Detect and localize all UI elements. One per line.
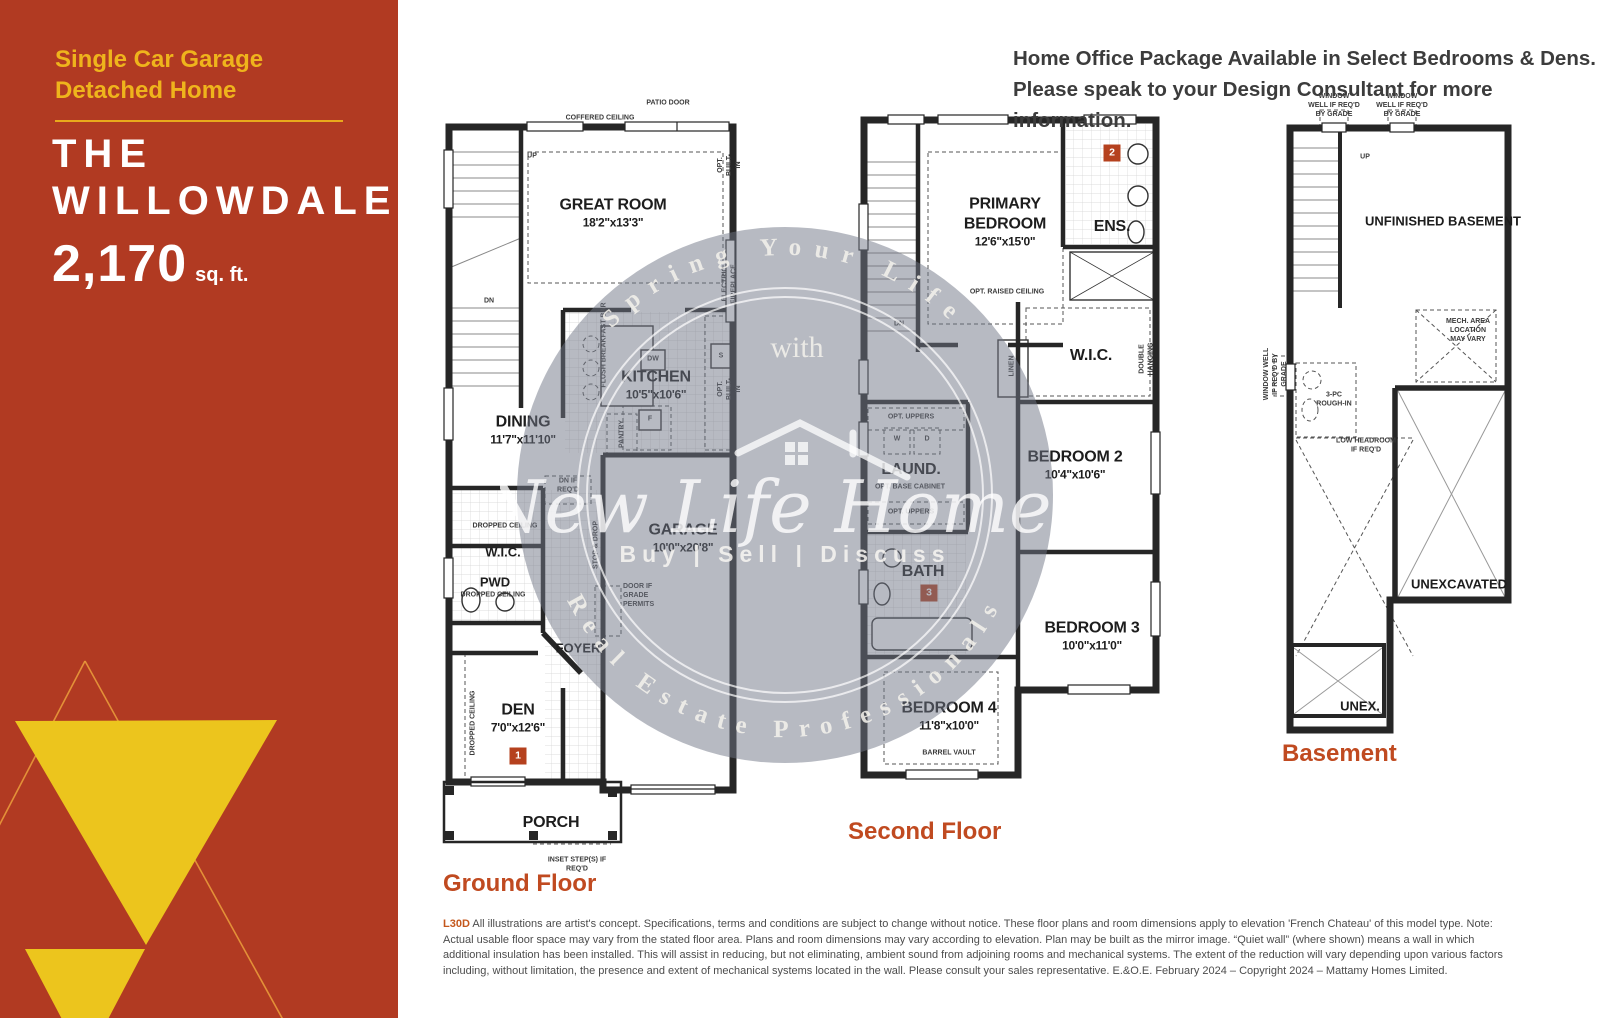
ann-window-well-left: WINDOW WELL IF REQ'D BY GRADE [1263,346,1289,402]
room-label-ens: ENS. [1094,218,1131,236]
ann-opt-raised-ceiling: OPT. RAISED CEILING [970,289,1044,298]
bath-badge: 3 [921,585,938,602]
ann-stop-drop: STOP & DROP [593,521,602,569]
plan-subtitle: Single Car Garage Detached Home [55,44,263,106]
room-label-garage: GARAGE 10'0"x20'8" [648,521,717,556]
room-label-den: DEN 7'0"x12'6" [491,701,545,736]
plan-code: L30D [443,918,470,930]
brand-sidebar: Single Car Garage Detached Home THE WILL… [0,0,398,1018]
home-office-note-line1: Home Office Package Available in Select … [1013,44,1600,75]
room-label-kitchen: KITCHEN 10'5"x10'6" [621,368,691,403]
floorplan-brochure-page: Single Car Garage Detached Home THE WILL… [0,0,1600,1018]
plan-title: THE WILLOWDALE [52,131,398,225]
ann-dn-second: DN [894,321,904,330]
plan-subtitle-line1: Single Car Garage [55,44,263,75]
house-window-icon [785,442,808,465]
room-label-wic: W.I.C. [485,545,520,560]
basement-plan: WINDOW WELL IF REQ'D BY GRADE WINDOW WEL… [1270,98,1520,748]
ens-badge: 2 [1104,145,1121,162]
ann-up: UP [527,153,537,162]
legal-disclaimer: L30D All illustrations are artist's conc… [443,917,1518,979]
room-label-great-room: GREAT ROOM 18'2"x13'3" [559,196,666,231]
second-floor-title: Second Floor [848,818,1001,846]
ann-up-basement: UP [1360,154,1370,163]
room-label-porch: PORCH [523,814,580,832]
room-label-bedroom2: BEDROOM 2 10'4"x10'6" [1027,448,1122,483]
home-office-note: Home Office Package Available in Select … [1013,44,1600,136]
triangle-logo-icon [0,598,398,1018]
room-label-foyer: FOYER [556,641,601,656]
plan-area: 2,170sq. ft. [52,234,248,294]
ann-opt-built-in: OPT. BUILT-IN [717,154,743,176]
plan-subtitle-line2: Detached Home [55,75,263,106]
ann-opt-uppers: OPT. UPPERS [888,414,934,423]
ann-door-if-grade: DOOR IF GRADE PERMITS [623,583,669,609]
ann-dw: DW [647,356,659,365]
ann-dryer: D [924,436,929,445]
area-unit: sq. ft. [195,264,248,286]
den-badge: 1 [510,748,527,765]
room-label-unex: UNEX. [1340,699,1380,714]
watermark-with: with [770,331,823,364]
ann-pantry: PANTRY [619,420,628,448]
ann-opt-base-cabinet: OPT. BASE CABINET [875,484,945,493]
room-label-wic-2: W.I.C. [1070,347,1112,365]
ann-dropped-ceiling-den: DROPPED CEILING [470,691,479,756]
area-value: 2,170 [52,235,187,293]
room-label-pwd: PWD [480,575,510,590]
ground-floor-plan: PATIO DOOR COFFERED CEILING GREAT ROOM 1… [443,88,737,878]
ann-dropped-ceiling-pwd: DROPPED CEILING [461,592,526,601]
ann-electric-fireplace: ELECTRIC FIREPLACE [721,264,739,304]
room-label-unexcavated: UNEXCAVATED [1411,577,1507,592]
room-label-bedroom4: BEDROOM 4 11'8"x10'0" [901,699,996,734]
room-label-dining: DINING 11'7"x11'10" [490,413,556,448]
gold-divider [55,120,343,122]
room-label-unfinished-basement: UNFINISHED BASEMENT [1365,214,1521,229]
ground-floor-title: Ground Floor [443,870,596,898]
room-label-bedroom3: BEDROOM 3 10'0"x11'0" [1044,619,1139,654]
ann-double-hanging: DOUBLE HANGING [1138,342,1156,375]
disclaimer-text: All illustrations are artist's concept. … [443,918,1503,977]
ann-washer: W [894,436,901,445]
ann-low-headroom: LOW HEADROOM IF REQ'D [1335,437,1397,455]
plan-title-line1: THE [52,131,398,178]
ann-barrel-vault: BARREL VAULT [922,750,975,759]
ann-linen: LINEN [1009,356,1018,377]
basement-title: Basement [1282,740,1397,768]
ann-patio-door: PATIO DOOR [646,100,689,109]
ann-sink: S [719,353,724,362]
second-floor-plan: 2 PRIMARY BEDROOM 12'6"x15'0" OPT. RAISE… [848,112,1164,812]
ann-dropped-ceiling-wic: DROPPED CEILING [473,523,538,532]
ann-coffered-ceiling: COFFERED CEILING [566,115,635,124]
ann-mech-area: MECH. AREA LOCATION MAY VARY [1444,318,1492,344]
home-office-note-line2: Please speak to your Design Consultant f… [1013,75,1600,137]
room-label-primary: PRIMARY BEDROOM 12'6"x15'0" [945,195,1065,250]
ann-rough-in: 3-PC ROUGH-IN [1314,391,1354,409]
ann-fridge: F [648,416,652,425]
ann-opt-built-in-2: OPT. BUILT-IN [717,378,743,400]
room-label-bath: BATH [902,563,944,581]
ann-dn-if-reqd: DN IF REQ'D [547,477,589,495]
ann-dn: DN [484,298,494,307]
room-label-laundry: LAUND. [881,461,940,479]
plan-title-line2: WILLOWDALE [52,178,398,225]
basement-walls [1270,98,1520,748]
ann-opt-uppers-2: OPT. UPPERS [888,509,934,518]
ann-flush-breakfast-bar: FLUSH BREAKFAST BAR [601,302,610,387]
